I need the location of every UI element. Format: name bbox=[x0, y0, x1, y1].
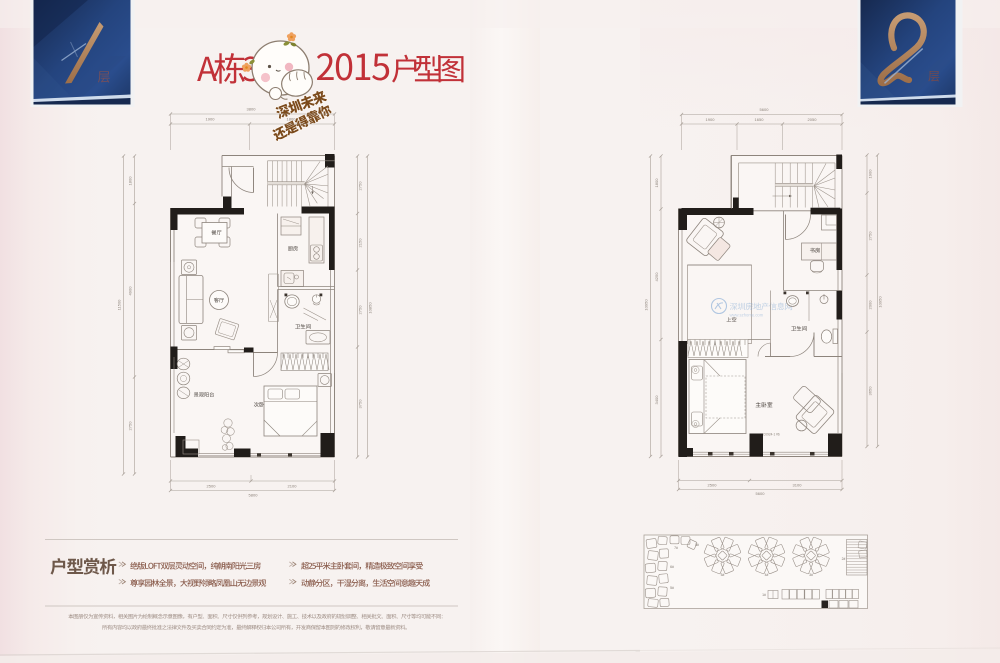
svg-text:10950: 10950 bbox=[644, 299, 649, 311]
svg-text:2750: 2750 bbox=[358, 181, 363, 191]
svg-text:2#: 2# bbox=[842, 557, 846, 561]
svg-text:5600: 5600 bbox=[756, 491, 766, 496]
svg-text:1900: 1900 bbox=[868, 169, 873, 179]
svg-text:2100: 2100 bbox=[288, 483, 298, 488]
svg-text:7#: 7# bbox=[674, 546, 678, 550]
svg-text:1800: 1800 bbox=[654, 178, 659, 188]
svg-text:1800: 1800 bbox=[287, 117, 297, 122]
svg-text:3#: 3# bbox=[809, 573, 813, 577]
svg-text:5#: 5# bbox=[721, 573, 725, 577]
svg-text:4#: 4# bbox=[765, 573, 769, 577]
svg-text:5600: 5600 bbox=[760, 107, 770, 112]
svg-text:2750: 2750 bbox=[868, 231, 873, 241]
svg-text:1650: 1650 bbox=[755, 117, 765, 122]
svg-text:3650: 3650 bbox=[868, 386, 873, 396]
svg-text:3100: 3100 bbox=[793, 483, 803, 488]
svg-text:1#: 1# bbox=[762, 593, 766, 597]
svg-text:5800: 5800 bbox=[249, 493, 259, 498]
svg-text:3800: 3800 bbox=[247, 107, 257, 112]
svg-text:6#: 6# bbox=[670, 565, 674, 569]
svg-text:3400: 3400 bbox=[654, 395, 659, 405]
svg-text:2500: 2500 bbox=[708, 483, 718, 488]
svg-text:3750: 3750 bbox=[358, 399, 363, 409]
svg-text:2000: 2000 bbox=[868, 300, 873, 310]
svg-text:10850: 10850 bbox=[368, 302, 373, 314]
svg-text:2150: 2150 bbox=[358, 238, 363, 248]
svg-text:8#: 8# bbox=[695, 543, 699, 547]
svg-text:www.szhome.com: www.szhome.com bbox=[730, 313, 764, 318]
svg-text:1900: 1900 bbox=[206, 117, 216, 122]
svg-text:4250: 4250 bbox=[654, 272, 659, 282]
svg-text:2050: 2050 bbox=[808, 117, 818, 122]
svg-text:C0924-1 #6: C0924-1 #6 bbox=[763, 433, 780, 437]
svg-text:1900: 1900 bbox=[706, 117, 716, 122]
svg-text:2500: 2500 bbox=[207, 483, 217, 488]
svg-text:10950: 10950 bbox=[878, 296, 883, 308]
svg-text:4900: 4900 bbox=[128, 286, 133, 296]
svg-text:1800: 1800 bbox=[128, 176, 133, 186]
svg-text:11500: 11500 bbox=[117, 299, 122, 311]
svg-text:2750: 2750 bbox=[358, 305, 363, 315]
svg-text:2750: 2750 bbox=[128, 421, 133, 431]
svg-text:5#: 5# bbox=[670, 586, 674, 590]
